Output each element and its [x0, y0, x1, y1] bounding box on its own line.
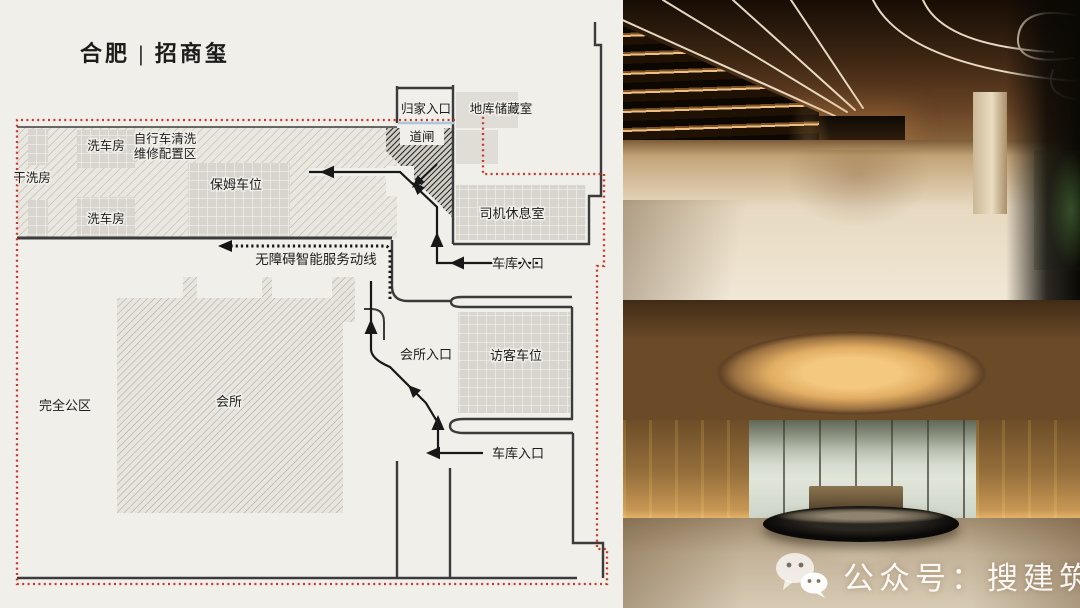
- label-visitor-parking: 访客车位: [490, 348, 542, 363]
- site-plan-diagram: 归家入口 地库储藏室 道闸 干洗房 洗车房 自行车清洗 维修配置区 保姆车位 洗…: [0, 0, 623, 608]
- accessible-route-line: [218, 240, 390, 299]
- label-club-entrance: 会所入口: [400, 347, 452, 362]
- page: 合肥 | 招商玺: [0, 0, 1080, 608]
- label-dry-clean: 干洗房: [13, 170, 51, 185]
- label-accessible-route: 无障碍智能服务动线: [255, 252, 377, 267]
- label-garage-entrance-top: 车库入口: [492, 256, 544, 271]
- nanny-parking-area: [188, 163, 290, 237]
- ceiling-shade: [623, 300, 1080, 340]
- label-garage-entrance-bottom: 车库入口: [492, 446, 544, 461]
- label-barrier-gate: 道闸: [409, 130, 434, 144]
- garage-corridor-photo: [623, 0, 1080, 300]
- wechat-icon: [775, 552, 829, 598]
- label-car-wash-bottom: 洗车房: [87, 211, 125, 226]
- lobby-wall-left: [623, 420, 749, 518]
- planting-glimpse: [1034, 150, 1080, 270]
- floor-reflection: [763, 150, 953, 270]
- lobby-floor-shade-left: [623, 518, 743, 608]
- floor-shadow: [623, 200, 783, 300]
- watermark-text: 公众号：搜建筑: [843, 553, 1080, 598]
- label-club: 会所: [216, 394, 242, 409]
- label-bike-line2: 维修配置区: [134, 146, 197, 161]
- lobby-wall-right: [976, 420, 1080, 518]
- stone-pillar: [973, 92, 1007, 214]
- water-feature-rim: [775, 508, 947, 524]
- label-public-area: 完全公区: [39, 398, 91, 413]
- label-driver-lounge: 司机休息室: [479, 206, 544, 221]
- label-nanny-parking: 保姆车位: [210, 177, 262, 192]
- label-home-entrance: 归家入口: [401, 101, 451, 116]
- label-car-wash-top: 洗车房: [87, 138, 125, 153]
- lobby-photo: 公众号：搜建筑: [623, 300, 1080, 608]
- label-bike-line1: 自行车清洗: [134, 131, 197, 146]
- watermark: 公众号：搜建筑: [775, 552, 1080, 598]
- site-plan-panel: 合肥 | 招商玺: [0, 0, 623, 608]
- label-basement-storage: 地库储藏室: [470, 101, 533, 116]
